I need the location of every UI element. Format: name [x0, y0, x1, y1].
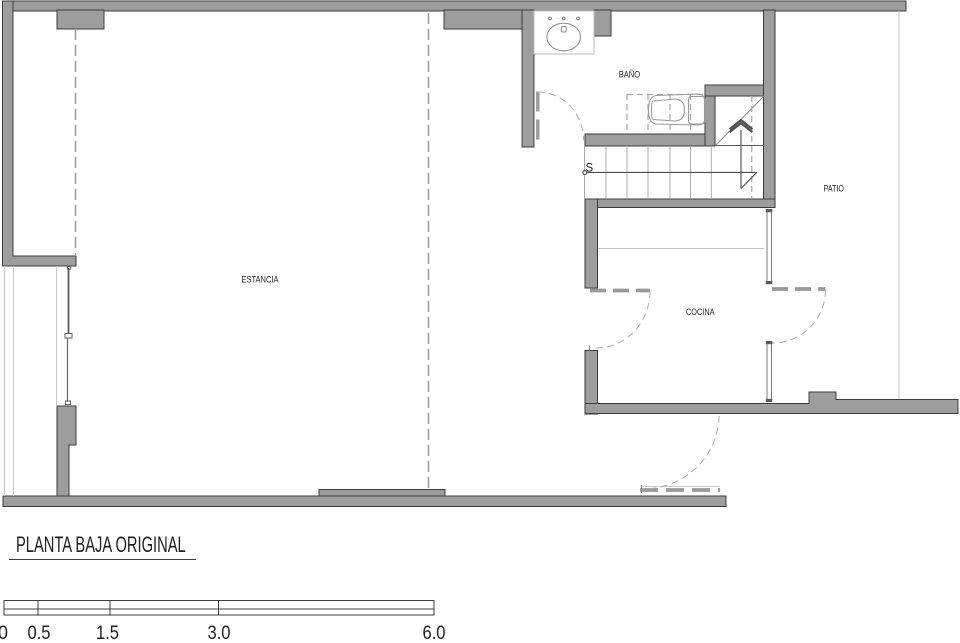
- svg-text:BAÑO: BAÑO: [619, 70, 641, 80]
- svg-text:1.5: 1.5: [96, 623, 119, 643]
- svg-text:PLANTA BAJA ORIGINAL: PLANTA BAJA ORIGINAL: [16, 533, 186, 557]
- svg-text:0: 0: [0, 623, 8, 643]
- svg-text:3.0: 3.0: [208, 623, 231, 643]
- svg-text:COCINA: COCINA: [686, 307, 715, 317]
- svg-text:0.5: 0.5: [28, 623, 51, 643]
- svg-text:6.0: 6.0: [423, 623, 446, 643]
- svg-text:S: S: [586, 163, 594, 175]
- svg-text:PATIO: PATIO: [824, 184, 845, 194]
- svg-text:ESTANCIA: ESTANCIA: [242, 274, 279, 284]
